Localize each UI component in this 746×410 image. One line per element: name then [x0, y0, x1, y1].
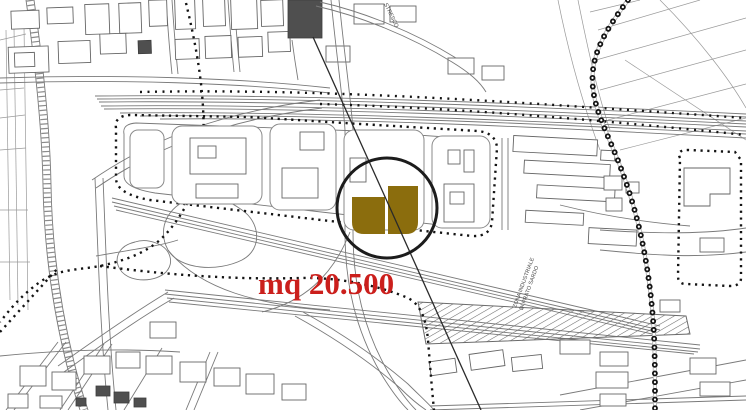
fields-top-right	[558, 0, 746, 150]
warehouses-right	[508, 136, 641, 247]
highlighted-parcel-left	[352, 197, 385, 234]
area-label: mq 20.500	[258, 266, 394, 301]
zone-label: ZONA INDUSTRIALE DI PRATO SARDO	[512, 256, 543, 312]
dark-building	[288, 0, 322, 38]
map-canvas: STRESCO ZONA INDUSTRIALE DI PRATO SARDO …	[0, 0, 746, 410]
highlighted-parcel-right	[388, 186, 418, 234]
municipal-boundary	[592, 0, 655, 410]
buildings-top-left	[7, 0, 291, 73]
dark-small-building	[138, 40, 151, 53]
